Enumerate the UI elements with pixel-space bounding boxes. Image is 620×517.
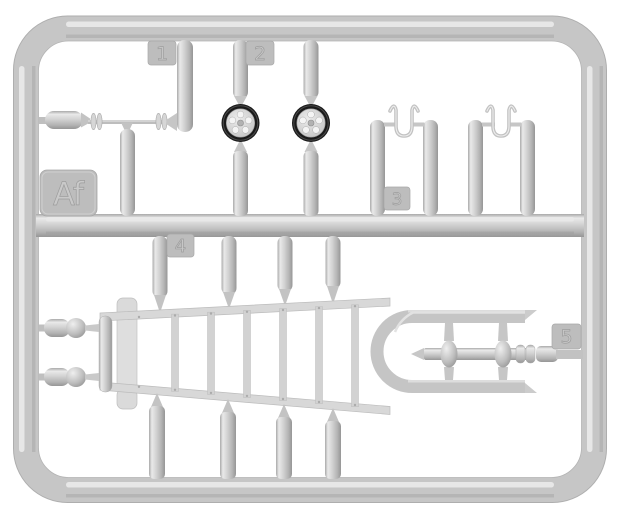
part-tag-5: 5	[552, 324, 581, 349]
svg-text:3: 3	[392, 190, 403, 210]
part-tag-3: 3	[384, 187, 410, 210]
svg-text:1: 1	[156, 43, 168, 65]
frame-code-tag: Af	[40, 170, 97, 216]
part-tag-2: 2	[246, 41, 274, 65]
middle-rail	[36, 214, 584, 237]
svg-text:5: 5	[560, 326, 572, 348]
part-tag-1: 1	[148, 41, 176, 65]
sprue-drawing: Af	[0, 0, 620, 517]
sprue-photo: Af	[0, 0, 620, 517]
svg-text:2: 2	[254, 43, 266, 65]
part-tag-4: 4	[167, 234, 194, 257]
svg-text:4: 4	[175, 236, 186, 257]
frame-code-text: Af	[53, 175, 85, 213]
